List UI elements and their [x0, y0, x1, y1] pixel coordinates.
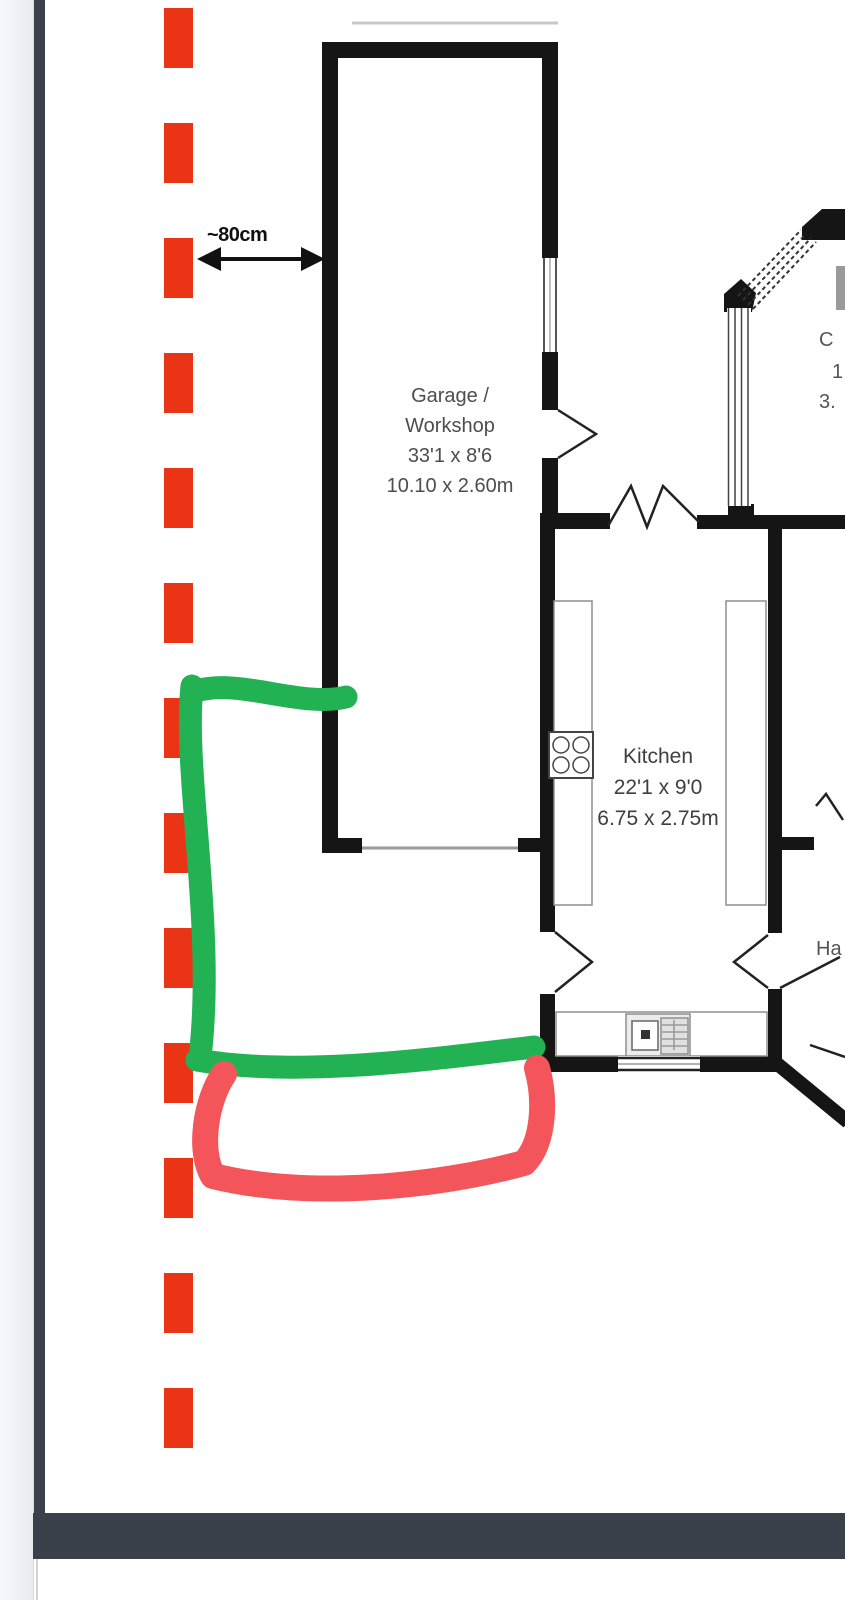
garage-window: [541, 258, 559, 352]
door-opening-symbols: [555, 410, 845, 1057]
garage-room-label: Garage / Workshop 33'1 x 8'6 10.10 x 2.6…: [340, 381, 560, 501]
garage-dims-metric: 10.10 x 2.60m: [340, 471, 560, 501]
kitchen-dims-imperial: 22'1 x 9'0: [558, 772, 758, 803]
partial-hall-label: Ha: [816, 938, 842, 960]
walls: [322, 42, 845, 1072]
kitchen-name: Kitchen: [558, 741, 758, 772]
partial-room-label-line2: 1: [832, 361, 843, 383]
kitchen-dims-metric: 6.75 x 2.75m: [558, 803, 758, 834]
garage-name-line1: Garage /: [340, 381, 560, 411]
kitchen-rear-window: [618, 1056, 700, 1072]
diagonal-wall: [775, 1062, 845, 1122]
green-annotation: [190, 686, 534, 1067]
partial-room-label-line3: 3.: [819, 391, 836, 413]
measurement-arrow: [197, 247, 325, 271]
sink-icon: [626, 1014, 690, 1056]
measurement-label: ~80cm: [207, 224, 267, 247]
floorplan-screenshot: { "measurement": { "label": "~80cm" }, "…: [0, 0, 845, 1600]
kitchen-room-label: Kitchen 22'1 x 9'0 6.75 x 2.75m: [558, 741, 758, 834]
garage-dims-imperial: 33'1 x 8'6: [340, 441, 560, 471]
partial-room-label-line1: C: [819, 329, 833, 351]
red-annotation: [205, 1068, 542, 1189]
garage-name-line2: Workshop: [340, 411, 560, 441]
bay-window-side: [727, 308, 751, 506]
